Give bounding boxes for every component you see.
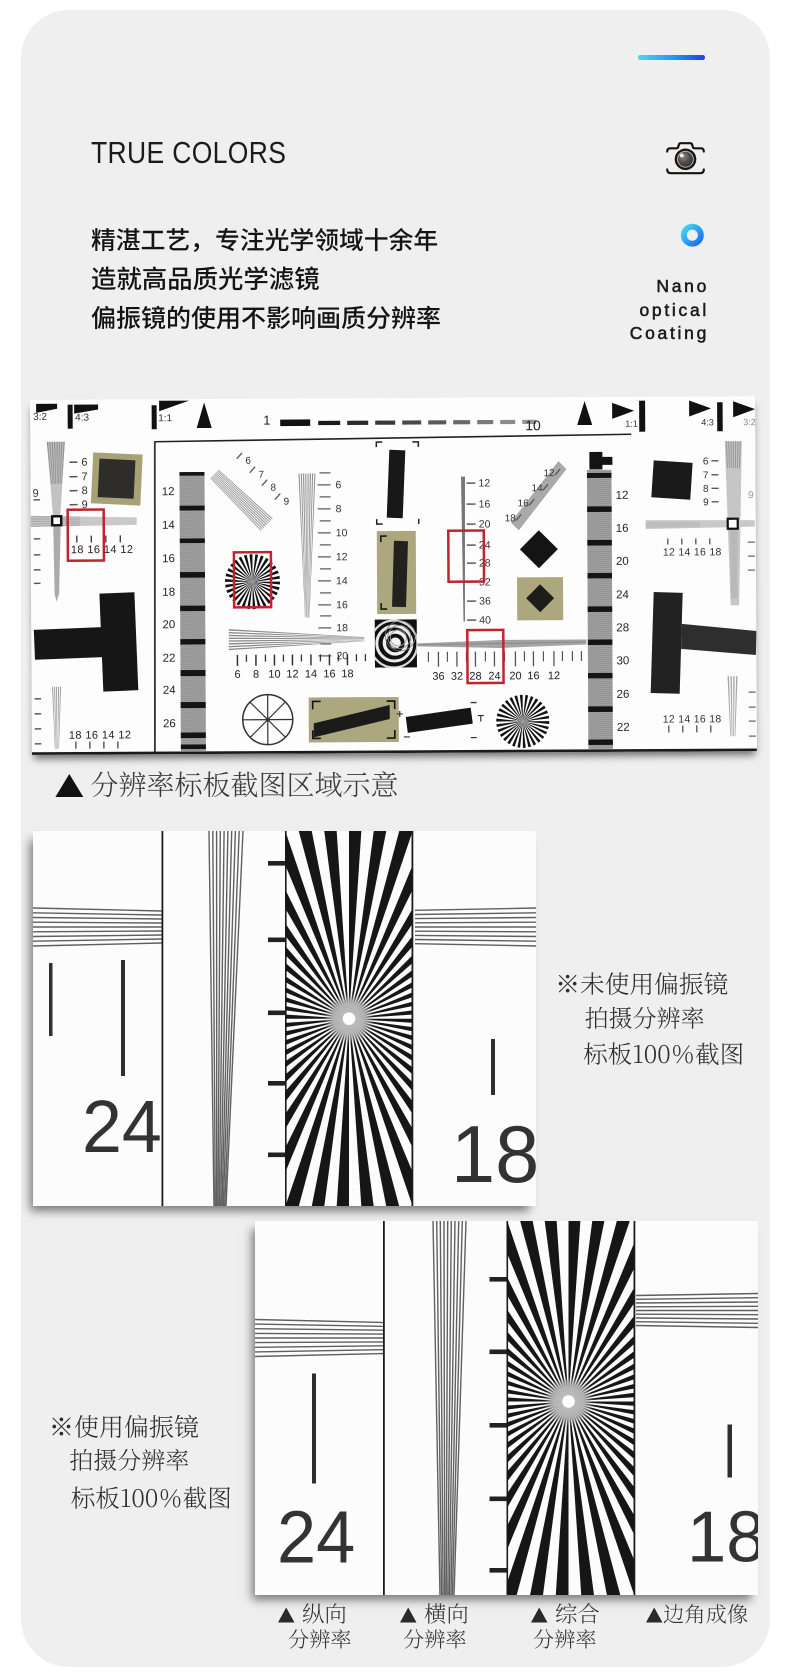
svg-text:9: 9 bbox=[748, 490, 754, 501]
svg-text:14: 14 bbox=[162, 520, 175, 532]
svg-text:10: 10 bbox=[268, 669, 280, 681]
svg-text:20: 20 bbox=[162, 619, 175, 631]
svg-text:1:1: 1:1 bbox=[625, 419, 638, 429]
svg-text:12 14 16 18: 12 14 16 18 bbox=[663, 713, 722, 725]
svg-text:22: 22 bbox=[163, 653, 176, 665]
svg-text:18 16 14 12: 18 16 14 12 bbox=[71, 544, 134, 556]
svg-text:30: 30 bbox=[616, 655, 629, 667]
svg-text:8: 8 bbox=[253, 669, 259, 681]
svg-text:18: 18 bbox=[341, 668, 353, 680]
svg-text:24: 24 bbox=[163, 685, 176, 697]
svg-text:9: 9 bbox=[284, 497, 290, 508]
svg-text:24: 24 bbox=[488, 670, 500, 682]
svg-text:4:3: 4:3 bbox=[701, 417, 714, 427]
svg-text:1:1: 1:1 bbox=[158, 413, 172, 424]
svg-text:12: 12 bbox=[548, 670, 560, 682]
svg-text:14: 14 bbox=[305, 668, 317, 680]
svg-text:8: 8 bbox=[271, 483, 277, 494]
svg-text:36: 36 bbox=[479, 595, 491, 607]
svg-text:14: 14 bbox=[336, 575, 348, 587]
svg-text:16: 16 bbox=[527, 670, 539, 682]
svg-text:16: 16 bbox=[479, 498, 491, 510]
svg-text:24: 24 bbox=[82, 1086, 162, 1168]
svg-text:8: 8 bbox=[82, 485, 88, 497]
svg-text:20: 20 bbox=[616, 556, 629, 568]
svg-text:12: 12 bbox=[478, 477, 490, 489]
svg-text:32: 32 bbox=[451, 671, 463, 683]
svg-text:18: 18 bbox=[162, 587, 175, 599]
svg-text:16: 16 bbox=[616, 523, 629, 535]
svg-text:12: 12 bbox=[543, 468, 555, 479]
svg-text:3:2: 3:2 bbox=[743, 417, 756, 427]
svg-text:36: 36 bbox=[432, 671, 444, 683]
svg-text:12: 12 bbox=[336, 551, 348, 563]
svg-text:6: 6 bbox=[234, 669, 240, 681]
svg-text:7: 7 bbox=[703, 470, 709, 481]
svg-text:14: 14 bbox=[532, 483, 544, 494]
svg-text:26: 26 bbox=[617, 689, 630, 701]
svg-text:12: 12 bbox=[162, 486, 175, 498]
svg-text:20: 20 bbox=[479, 518, 491, 530]
svg-text:40: 40 bbox=[479, 614, 491, 626]
svg-text:18: 18 bbox=[336, 622, 348, 634]
svg-text:12: 12 bbox=[286, 668, 298, 680]
svg-text:6: 6 bbox=[245, 456, 251, 467]
svg-text:7: 7 bbox=[81, 471, 87, 483]
svg-text:8: 8 bbox=[703, 484, 709, 495]
svg-text:28: 28 bbox=[469, 671, 481, 683]
svg-text:16: 16 bbox=[323, 668, 335, 680]
svg-text:26: 26 bbox=[163, 718, 176, 730]
svg-text:4:3: 4:3 bbox=[75, 413, 89, 424]
svg-text:9: 9 bbox=[33, 488, 39, 500]
svg-text:16: 16 bbox=[336, 599, 348, 611]
svg-text:16: 16 bbox=[162, 553, 175, 565]
svg-text:12: 12 bbox=[616, 490, 629, 502]
svg-text:10: 10 bbox=[525, 417, 541, 433]
svg-text:18: 18 bbox=[505, 513, 517, 524]
svg-text:18 16 14 12: 18 16 14 12 bbox=[69, 729, 132, 741]
svg-text:6: 6 bbox=[703, 456, 709, 467]
svg-text:7: 7 bbox=[258, 470, 264, 481]
svg-text:22: 22 bbox=[617, 722, 630, 734]
svg-text:10: 10 bbox=[336, 527, 348, 539]
svg-text:18: 18 bbox=[451, 1108, 536, 1199]
svg-text:20: 20 bbox=[509, 670, 521, 682]
svg-text:24: 24 bbox=[277, 1496, 355, 1578]
svg-text:6: 6 bbox=[335, 479, 341, 491]
svg-text:8: 8 bbox=[336, 503, 342, 515]
svg-text:16: 16 bbox=[518, 498, 530, 509]
svg-text:24: 24 bbox=[616, 589, 629, 601]
svg-text:28: 28 bbox=[616, 622, 629, 634]
svg-text:18: 18 bbox=[687, 1496, 758, 1577]
svg-text:6: 6 bbox=[81, 457, 87, 469]
svg-text:3:2: 3:2 bbox=[33, 412, 47, 423]
svg-text:1: 1 bbox=[263, 413, 270, 428]
svg-text:12 14 16 18: 12 14 16 18 bbox=[663, 546, 722, 558]
svg-text:9: 9 bbox=[703, 497, 709, 508]
